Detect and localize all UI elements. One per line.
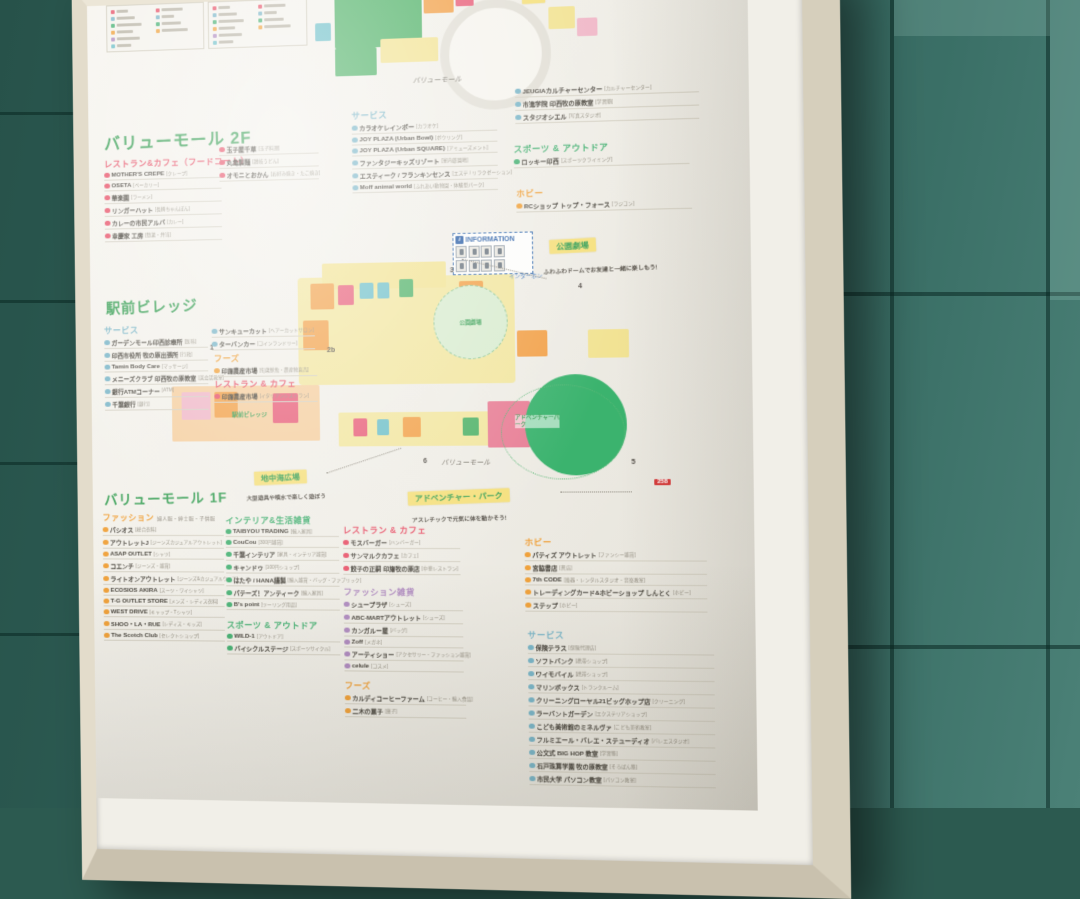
map-marker-4: 4 bbox=[578, 283, 582, 290]
store-category: [キャップ・Tシャツ] bbox=[149, 609, 191, 616]
store-number-badge bbox=[345, 695, 350, 701]
store-item: ABC-MARTアウトレット[シューズ] bbox=[344, 613, 463, 624]
store-category: [室内遊園地] bbox=[441, 157, 468, 165]
store-item: カラオケレインボー[カラオケ] bbox=[352, 120, 498, 135]
store-item: 餃子の正嗣 印旛牧の原店[中華レストラン] bbox=[343, 564, 460, 575]
store-name: B's point bbox=[234, 601, 260, 608]
store-category: [ファンシー雑貨] bbox=[598, 551, 635, 558]
store-name: 印西市役所 牧の原出張所 bbox=[112, 350, 179, 360]
store-number-badge bbox=[352, 173, 357, 179]
store-number-badge bbox=[529, 710, 535, 716]
store-category: [メガネ] bbox=[365, 639, 382, 646]
store-category: [コーヒー・輸入食品] bbox=[427, 695, 473, 703]
store-name: CouCou bbox=[233, 539, 256, 546]
store-category: [セレクトショップ] bbox=[160, 632, 200, 639]
pictogram-icon bbox=[481, 245, 492, 257]
store-number-badge bbox=[344, 663, 349, 669]
store-category: [ジーンズ・雑貨] bbox=[136, 562, 171, 569]
store-item: パティズ アウトレット[ファンシー雑貨] bbox=[525, 550, 707, 561]
section-vm1f-foods: フーズカルディコーヒーファーム[コーヒー・輸入食品]二木の菓子[菓子] bbox=[345, 679, 467, 720]
store-name: パテーズ！アンティーク bbox=[234, 588, 300, 597]
store-name: Zoff bbox=[352, 639, 364, 646]
store-item: B's point[ツーリング用品] bbox=[226, 601, 339, 610]
store-item: カンガルー屋[バッグ] bbox=[344, 626, 463, 637]
store-name: SHOO・LA・RUE bbox=[111, 619, 161, 628]
section-heading: フーズ bbox=[214, 351, 317, 364]
legend-entry bbox=[258, 16, 302, 23]
store-item: カレーの市民アルバ[カレー] bbox=[105, 216, 222, 229]
store-name: 宮脇書店 bbox=[532, 563, 557, 572]
store-number-badge bbox=[525, 552, 531, 558]
store-category: [コインランドリー] bbox=[257, 340, 297, 347]
map-legend bbox=[106, 0, 308, 52]
store-category: [携帯ショップ] bbox=[576, 657, 608, 664]
mediterranean-caption: 大型遊具や噴水で楽しく遊ぼう bbox=[246, 491, 326, 502]
store-number-badge bbox=[104, 340, 109, 345]
legend-entry bbox=[258, 23, 302, 30]
legend-entry bbox=[111, 8, 154, 14]
store-item: カルディコーヒーファーム[コーヒー・輸入食品] bbox=[345, 693, 466, 705]
map-marker-5: 5 bbox=[631, 459, 635, 466]
store-number-badge bbox=[226, 564, 231, 569]
store-number-badge bbox=[214, 368, 219, 373]
store-name: カンガルー屋 bbox=[351, 626, 388, 635]
directory-board: バリューモール バリューモール 2F レストラン&カフェ（フードコート）MOTH… bbox=[87, 0, 758, 811]
store-number-badge bbox=[104, 621, 109, 626]
store-number-badge bbox=[528, 671, 534, 677]
store-category: [アウトドア] bbox=[257, 633, 283, 640]
intercom-label: インターホン bbox=[509, 272, 542, 281]
store-category: [シャツ] bbox=[154, 551, 170, 558]
adventure-area-label: アドベンチャーパーク bbox=[515, 415, 560, 429]
store-item: CouCou[300円雑貨] bbox=[226, 539, 339, 548]
store-name: フルミエール・バレエ・ステューディオ bbox=[536, 735, 649, 746]
section-heading: サービス bbox=[104, 323, 208, 336]
store-name: エスティーク / フランキンセンス bbox=[360, 169, 451, 180]
store-item: 保険テラス[保険代理店] bbox=[528, 643, 714, 655]
store-name: 千葉銀行 bbox=[112, 400, 136, 409]
store-item: バイシクルステージ[スポーツサイクル] bbox=[227, 644, 340, 655]
store-name: アウトレットJ bbox=[110, 538, 149, 547]
store-item: 丸亀製麺[讃岐うどん] bbox=[219, 155, 319, 168]
store-item: スタジオシエル[写真スタジオ] bbox=[515, 108, 699, 124]
section-vm1f-service: サービス保険テラス[保険代理店]ソフトバンク[携帯ショップ]ワイモバイル[携帯シ… bbox=[528, 629, 716, 791]
store-name: ライトオンアウトレット bbox=[110, 574, 175, 583]
store-number-badge bbox=[525, 602, 531, 608]
store-category: [学習塾] bbox=[596, 98, 614, 106]
store-number-badge bbox=[345, 708, 350, 714]
store-number-badge bbox=[352, 125, 357, 131]
store-category: [書店] bbox=[559, 564, 572, 571]
store-number-badge bbox=[344, 601, 349, 607]
store-number-badge bbox=[104, 195, 109, 201]
store-name: T-G OUTLET STORE bbox=[111, 598, 168, 605]
store-name: こども美術館のミネルヴァ bbox=[536, 722, 612, 732]
store-name: ターバンカー bbox=[219, 339, 255, 348]
legend-entry bbox=[213, 25, 256, 31]
store-number-badge bbox=[344, 627, 349, 633]
store-item: 印旛農産市場[旬菜鮮魚・農産物直売] bbox=[214, 365, 317, 377]
legend-entry bbox=[111, 42, 154, 48]
store-name: ASAP OUTLET bbox=[110, 551, 152, 558]
store-number-badge bbox=[105, 364, 110, 369]
store-name: WEST DRIVE bbox=[111, 608, 148, 615]
store-item: アウトレットJ[ジーンズカジュアルアウトレット] bbox=[103, 538, 224, 548]
store-item: Zoff[メガネ] bbox=[344, 639, 463, 648]
store-name: ステップ bbox=[533, 601, 558, 610]
store-number-badge bbox=[219, 147, 224, 153]
store-item: 玉子屋千草[玉子料理] bbox=[219, 143, 319, 156]
store-item: WILD-1[アウトドア] bbox=[227, 633, 340, 642]
legend-entry bbox=[111, 21, 154, 27]
store-category: [カレー] bbox=[167, 218, 183, 225]
store-number-badge bbox=[344, 651, 349, 657]
store-category: [スポーツクライミング] bbox=[561, 156, 613, 164]
store-category: [総合衣料] bbox=[135, 526, 156, 533]
area-banner bbox=[522, 0, 546, 4]
store-number-badge bbox=[344, 639, 349, 645]
store-category: [300円雑貨] bbox=[258, 539, 283, 546]
store-name: 市進学院 印西牧の原教室 bbox=[523, 97, 594, 108]
store-name: サンキューカット bbox=[219, 326, 267, 336]
store-number-badge bbox=[104, 183, 109, 189]
store-name: 餃子の正嗣 印旛牧の原店 bbox=[351, 564, 420, 573]
store-item: ラーバントガーデン[エクステリアショップ] bbox=[529, 708, 715, 721]
store-item: 二木の菓子[菓子] bbox=[345, 706, 466, 718]
store-name: 7th CODE bbox=[533, 576, 562, 583]
store-category: [カフェ] bbox=[401, 552, 418, 559]
store-item: オモニとおかん[お好み焼き・たこ焼き] bbox=[219, 168, 319, 181]
store-category: [クリーニング] bbox=[652, 698, 685, 706]
store-number-badge bbox=[214, 394, 219, 399]
store-category: [そろばん塾] bbox=[610, 763, 637, 771]
store-name: 石戸珠算学園 牧の原教室 bbox=[537, 761, 608, 771]
store-number-badge bbox=[105, 376, 110, 381]
legend-entry bbox=[111, 15, 154, 21]
section-vm2f-hobby: ホビーRCショップ トップ・フォース[ラジコン] bbox=[516, 183, 692, 214]
store-item: シュープラザ[シューズ] bbox=[344, 600, 463, 611]
store-number-badge bbox=[103, 576, 108, 581]
store-item: JOY PLAZA (Urban Bowl)[ボウリング] bbox=[352, 133, 498, 146]
store-item: 印西市役所 牧の原出張所[行政] bbox=[104, 350, 208, 362]
pictogram-icon bbox=[493, 245, 504, 257]
store-item: ファンタジーキッズリゾート[室内遊園地] bbox=[352, 155, 498, 169]
store-item: The Scotch Club[セレクトショップ] bbox=[104, 632, 225, 641]
store-item: 市民大学 パソコン教室[パソコン教室] bbox=[529, 774, 716, 788]
store-category: [シューズ] bbox=[389, 601, 411, 608]
store-category: [輸入雑貨・バッグ・ファブリック] bbox=[288, 577, 361, 584]
store-number-badge bbox=[226, 540, 231, 545]
store-item: WEST DRIVE[キャップ・Tシャツ] bbox=[104, 608, 225, 617]
store-number-badge bbox=[105, 402, 110, 407]
store-name: 二木の菓子 bbox=[352, 706, 383, 715]
store-name: コエンチ bbox=[110, 561, 134, 570]
store-name: ロッキー印西 bbox=[521, 156, 559, 166]
store-number-badge bbox=[528, 645, 534, 651]
store-item: Tamin Body Care[マッサージ] bbox=[105, 362, 209, 372]
store-category: [イタリアンレストラン] bbox=[260, 392, 309, 399]
legend-entry bbox=[155, 6, 199, 13]
store-item: アーティショー[アクセサリー・ファッション雑貨] bbox=[344, 649, 463, 661]
store-item: リンガーハット[長崎ちゃんぽん] bbox=[105, 203, 222, 216]
store-name: 市民大学 パソコン教室 bbox=[537, 774, 602, 784]
store-name: celule bbox=[352, 662, 369, 669]
legend-entry bbox=[258, 2, 302, 9]
store-name: JOY PLAZA (Urban Bowl) bbox=[359, 134, 433, 143]
store-name: ワイモバイル bbox=[536, 669, 574, 678]
store-item: パテーズ！アンティーク[輸入家具] bbox=[226, 588, 339, 599]
store-number-badge bbox=[105, 220, 110, 225]
store-number-badge bbox=[525, 577, 531, 583]
section-ekimae-foods: フーズ印旛農産市場[旬菜鮮魚・農産物直売] bbox=[214, 351, 318, 379]
store-number-badge bbox=[105, 233, 110, 238]
store-name: OSETA bbox=[111, 182, 131, 189]
store-number-badge bbox=[529, 736, 535, 742]
store-category: [ホビー] bbox=[673, 589, 691, 596]
store-item: クリーニングローヤル21ビッグホップ店[クリーニング] bbox=[528, 695, 714, 708]
store-category: [讃岐うどん] bbox=[252, 158, 278, 166]
facility-pictograms bbox=[456, 245, 531, 272]
store-name: WILD-1 bbox=[234, 633, 255, 640]
store-item: キャンドゥ[100円ショップ] bbox=[226, 563, 339, 574]
pictogram-icon bbox=[456, 246, 467, 258]
floor-title-vm1f: バリューモール 1F bbox=[104, 487, 228, 510]
store-item: 公文式 BIG HOP 教室[学習塾] bbox=[529, 748, 715, 762]
mall-directory-sign: バリューモール バリューモール 2F レストラン&カフェ（フードコート）MOTH… bbox=[72, 0, 852, 899]
store-name: マリンボックス bbox=[536, 682, 580, 692]
store-number-badge bbox=[226, 602, 231, 607]
store-item: 石戸珠算学園 牧の原教室[そろばん塾] bbox=[529, 761, 716, 775]
store-item: トレーディングカード&ホビーショップ しんとく[ホビー] bbox=[525, 587, 707, 598]
store-number-badge bbox=[528, 658, 534, 664]
store-name: トレーディングカード&ホビーショップ しんとく bbox=[533, 587, 671, 597]
section-ekimae-service-col2: サンキューカット[ヘアーカットサロン]ターバンカー[コインランドリー] bbox=[212, 325, 316, 352]
section-vm1f-interior: インテリア&生活雑貨TAIBYOU TRADING[輸入家具]CouCou[30… bbox=[225, 514, 339, 613]
store-item: ガーデンモール印西診療所[医科] bbox=[104, 337, 208, 349]
store-category: [エステ / リラクゼーション] bbox=[452, 168, 512, 177]
legend-entry bbox=[111, 35, 154, 41]
legend-entry bbox=[258, 9, 302, 16]
store-item: ステップ[ホビー] bbox=[525, 601, 707, 613]
store-category: [ラーメン] bbox=[131, 193, 152, 200]
store-category: [マッサージ] bbox=[162, 363, 188, 370]
section-heading: ファッション婦人服・紳士服・子供服 bbox=[102, 511, 223, 523]
store-name: The Scotch Club bbox=[111, 632, 158, 639]
store-name: アーティショー bbox=[352, 650, 395, 659]
store-number-badge bbox=[212, 329, 217, 334]
section-vm1f-restaurant: レストラン & カフェモスバーガー[ハンバーガー]サンマルクカフェ[カフェ]餃子… bbox=[343, 524, 461, 577]
store-number-badge bbox=[528, 684, 534, 690]
store-number-badge bbox=[514, 159, 520, 165]
store-number-badge bbox=[529, 723, 535, 729]
legend-entry bbox=[155, 20, 199, 27]
road-number-badge: 258 bbox=[654, 479, 671, 485]
store-number-badge bbox=[104, 173, 109, 179]
store-number-badge bbox=[352, 137, 357, 143]
store-category: [カルチャーセンター] bbox=[604, 84, 651, 93]
store-name: カルディコーヒーファーム bbox=[352, 693, 425, 703]
store-name: サンマルクカフェ bbox=[350, 551, 399, 560]
legend-entry bbox=[213, 32, 256, 38]
store-category: [ふれあい動物園・体験型パーク] bbox=[414, 181, 484, 190]
legend-entry bbox=[213, 4, 256, 11]
store-number-badge bbox=[104, 598, 109, 603]
legend-box bbox=[106, 2, 204, 53]
store-number-badge bbox=[227, 645, 232, 650]
store-number-badge bbox=[344, 614, 349, 620]
store-item: サンキューカット[ヘアーカットサロン] bbox=[212, 325, 315, 337]
section-heading: スポーツ & アウトドア bbox=[227, 619, 340, 632]
section-vm2f-culture: JEUGIAカルチャーセンター[カルチャーセンター]市進学院 印西牧の原教室[学… bbox=[515, 81, 699, 126]
store-number-badge bbox=[529, 776, 535, 782]
store-category: [スポーツサイクル] bbox=[290, 645, 330, 652]
store-name: ファンタジーキッズリゾート bbox=[360, 156, 440, 167]
store-item: TAIBYOU TRADING[輸入家具] bbox=[226, 528, 339, 536]
store-category: [スーツ・ワイシャツ] bbox=[160, 587, 204, 594]
store-category: [バッグ] bbox=[390, 627, 407, 634]
section-vm1f-fashion-goods: ファッション雑貨シュープラザ[シューズ]ABC-MARTアウトレット[シューズ]… bbox=[343, 586, 463, 675]
store-name: 印旛農産市場 bbox=[221, 366, 257, 375]
store-item: 宮脇書店[書店] bbox=[525, 563, 707, 574]
store-number-badge bbox=[515, 115, 521, 121]
store-category: [カラオケ] bbox=[416, 122, 438, 130]
store-category: [長崎ちゃんぽん] bbox=[155, 205, 190, 213]
store-name: 印旛農産市場 bbox=[222, 392, 258, 401]
store-category: [シューズ] bbox=[423, 614, 445, 621]
store-name: カレーの市民アルバ bbox=[112, 218, 165, 228]
store-category: [こども美術教室] bbox=[614, 724, 651, 732]
store-number-badge bbox=[343, 540, 348, 545]
store-item: マリンボックス[トランクルーム] bbox=[528, 682, 714, 695]
store-number-badge bbox=[516, 203, 522, 209]
legend-entry bbox=[155, 13, 199, 20]
store-category: [携帯ショップ] bbox=[575, 671, 607, 678]
adventure-park-outline bbox=[500, 384, 625, 480]
store-category: [菓子] bbox=[385, 708, 397, 715]
park-theater-banner: 公園劇場 bbox=[549, 237, 596, 254]
store-item: フルミエール・バレエ・ステューディオ[バレエスタジオ] bbox=[529, 735, 715, 748]
store-category: [ヘアーカットサロン] bbox=[269, 326, 314, 334]
store-category: [100円ショップ] bbox=[265, 564, 299, 571]
section-vm2f-service: サービスカラオケレインボー[カラオケ]JOY PLAZA (Urban Bowl… bbox=[352, 105, 499, 195]
store-number-badge bbox=[515, 88, 521, 94]
legend-entry bbox=[155, 27, 199, 33]
store-name: ガーデンモール印西診療所 bbox=[111, 337, 182, 347]
legend-entry bbox=[213, 18, 256, 25]
store-name: MOTHER'S CREPE bbox=[111, 170, 164, 178]
store-item: OSETA[ベーカリー] bbox=[104, 180, 221, 191]
section-ekimae-service: サービスガーデンモール印西診療所[医科]印西市役所 牧の原出張所[行政]Tami… bbox=[104, 323, 209, 413]
store-item: パシオス[総合衣料] bbox=[103, 525, 224, 535]
store-category: [ジーンズカジュアルアウトレット] bbox=[151, 539, 222, 546]
store-name: JEUGIAカルチャーセンター bbox=[522, 84, 602, 96]
store-category: [トランクルーム] bbox=[582, 684, 619, 691]
store-name: JOY PLAZA (Urban SQUARE) bbox=[359, 145, 445, 154]
store-name: 千葉インテリア bbox=[233, 550, 275, 559]
store-number-badge bbox=[525, 565, 531, 571]
store-name: ECOSIOS AKIRA bbox=[111, 587, 158, 594]
info-icon: i bbox=[455, 236, 463, 244]
store-number-badge bbox=[105, 208, 110, 214]
store-category: [ハンバーガー] bbox=[389, 539, 420, 546]
store-name: パティズ アウトレット bbox=[532, 550, 596, 559]
store-category: [パソコン教室] bbox=[604, 776, 636, 784]
store-category: [アクセサリー・ファッション雑貨] bbox=[396, 651, 471, 659]
store-category: [家具・インテリア雑貨] bbox=[277, 551, 327, 558]
store-name: 幸慶家 工房 bbox=[112, 231, 143, 240]
store-name: ソフトバンク bbox=[536, 656, 574, 665]
store-number-badge bbox=[352, 160, 357, 166]
store-item: エスティーク / フランキンセンス[エステ / リラクゼーション] bbox=[352, 168, 498, 182]
store-name: リンガーハット bbox=[112, 205, 153, 215]
section-vm1f-sports: スポーツ & アウトドアWILD-1[アウトドア]バイシクルステージ[スポーツサ… bbox=[227, 619, 341, 658]
store-number-badge bbox=[103, 588, 108, 593]
store-category: [ホビー] bbox=[560, 602, 577, 609]
store-item: MOTHER'S CREPE[クレープ] bbox=[104, 169, 221, 180]
section-vm2f-restaurant-col2: 玉子屋千草[玉子料理]丸亀製麺[讃岐うどん]オモニとおかん[お好み焼き・たこ焼き… bbox=[219, 143, 319, 184]
section-heading: ファッション雑貨 bbox=[343, 586, 462, 598]
store-item: ライトオンアウトレット[ジーンズ&カジュアルウェア] bbox=[103, 574, 224, 585]
store-item: 印旛農産市場[イタリアンレストラン] bbox=[214, 391, 317, 402]
store-category: [お好み焼き・たこ焼き] bbox=[271, 169, 321, 177]
store-name: キャンドゥ bbox=[233, 563, 263, 572]
store-number-badge bbox=[529, 750, 535, 756]
store-number-badge bbox=[515, 101, 521, 107]
store-item: モスバーガー[ハンバーガー] bbox=[343, 538, 460, 549]
store-number-badge bbox=[529, 763, 535, 769]
legend-entry bbox=[111, 28, 154, 34]
section-subnote: 婦人服・紳士服・子供服 bbox=[157, 516, 215, 522]
store-name: メニーズクラブ 印西牧の原教室 bbox=[112, 373, 197, 383]
store-number-badge bbox=[352, 148, 357, 154]
store-number-badge bbox=[212, 341, 217, 346]
mediterranean-banner: 地中海広場 bbox=[254, 470, 307, 486]
section-heading: フーズ bbox=[345, 679, 466, 692]
store-item: 華楽園[ラーメン] bbox=[104, 191, 221, 204]
store-name: Moff animal world bbox=[360, 183, 412, 191]
store-item: ターバンカー[コインランドリー] bbox=[212, 338, 315, 350]
store-name: スタジオシエル bbox=[523, 111, 567, 121]
store-item: はたや / HANA謹製[輸入雑貨・バッグ・ファブリック] bbox=[226, 575, 339, 586]
ekimae-area-label: 駅前ビレッジ bbox=[232, 409, 267, 418]
store-item: 千葉インテリア[家具・インテリア雑貨] bbox=[226, 550, 339, 561]
store-category: [ベーカリー] bbox=[133, 181, 159, 189]
store-number-badge bbox=[227, 633, 232, 638]
store-category: [輸入家具] bbox=[301, 590, 323, 597]
adventure-caption: アスレチックで元気に体を動かそう! bbox=[412, 513, 507, 525]
information-box: i INFORMATION bbox=[452, 231, 533, 274]
store-number-badge bbox=[105, 389, 110, 394]
store-number-badge bbox=[226, 577, 231, 582]
park-theater-caption: ふわふわドームでお友達と一緒に楽しもう! bbox=[543, 262, 657, 276]
store-item: ワイモバイル[携帯ショップ] bbox=[528, 669, 714, 681]
section-heading: レストラン & カフェ bbox=[214, 377, 317, 390]
floor-title-ekimae: 駅前ビレッジ bbox=[105, 295, 198, 319]
store-number-badge bbox=[525, 589, 531, 595]
section-ekimae-restaurant: レストラン & カフェ印旛農産市場[イタリアンレストラン] bbox=[214, 377, 318, 405]
store-item: 千葉銀行[銀行] bbox=[105, 399, 209, 410]
store-category: [楽器・レンタルスタジオ・音楽教室] bbox=[564, 576, 645, 583]
section-vm2f-sports: スポーツ & アウトドアロッキー印西[スポーツクライミング] bbox=[514, 138, 690, 170]
store-name: RCショップ トップ・フォース bbox=[524, 199, 610, 210]
section-heading: レストラン & カフェ bbox=[343, 524, 460, 536]
store-name: 華楽園 bbox=[112, 193, 130, 202]
store-item: Moff animal world[ふれあい動物園・体験型パーク] bbox=[352, 181, 498, 193]
store-item: ECOSIOS AKIRA[スーツ・ワイシャツ] bbox=[103, 587, 224, 596]
store-name: ABC-MARTアウトレット bbox=[351, 613, 421, 622]
legend-box bbox=[208, 0, 308, 49]
store-number-badge bbox=[226, 529, 231, 534]
